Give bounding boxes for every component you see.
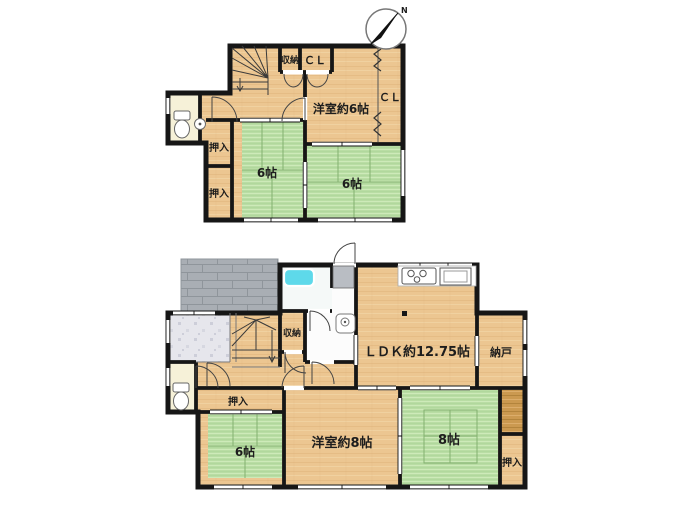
1f-toilet-fixture — [173, 383, 189, 410]
2f-closet-top-label: ＣＬ — [304, 54, 326, 67]
1f-ldk-label: ＬＤＫ約12.75帖 — [364, 344, 470, 360]
2f-closet-right-label: ＣＬ — [379, 91, 401, 104]
2f-tatami-right-label: 6帖 — [342, 176, 362, 191]
2f-western-room-label: 洋室約6帖 — [313, 101, 369, 116]
1f-nando-label: 納戸 — [490, 345, 512, 359]
1f-tatami8-label: 8帖 — [438, 432, 460, 448]
floor-1f: 収納 ＬＤＫ約12.75帖 納戸 押入 6帖 洋室約8帖 8帖 押入 — [166, 243, 528, 489]
2f-oshiire-lower-label: 押入 — [209, 187, 229, 200]
1f-oshiire-left-label: 押入 — [228, 395, 248, 408]
1f-board-closet — [500, 390, 523, 434]
1f-western-room-label: 洋室約8帖 — [311, 435, 372, 451]
floorplan-canvas: 収納 ＣＬ 洋室約6帖 ＣＬ 押入 押入 6帖 6帖 N — [0, 0, 674, 506]
1f-oshiire-right-label: 押入 — [502, 456, 522, 469]
1f-bathtub — [284, 269, 314, 286]
floor-2f: 収納 ＣＬ 洋室約6帖 ＣＬ 押入 押入 6帖 6帖 — [166, 46, 406, 222]
2f-tatami-left-label: 6帖 — [257, 165, 277, 180]
1f-washing-machine — [333, 266, 354, 288]
1f-vanity-sink — [336, 314, 355, 333]
1f-porch — [181, 259, 278, 311]
1f-pillar — [402, 311, 407, 316]
compass-north-label: N — [401, 6, 408, 15]
1f-tatami6-label: 6帖 — [235, 444, 255, 459]
1f-washroom-strip — [332, 288, 356, 312]
2f-oshiire-upper-label: 押入 — [209, 141, 229, 154]
floorplan-svg: 収納 ＣＬ 洋室約6帖 ＣＬ 押入 押入 6帖 6帖 N — [0, 0, 674, 506]
1f-genkan — [168, 313, 230, 362]
1f-storage-label: 収納 — [283, 327, 301, 339]
1f-kitchen-counter — [398, 266, 476, 286]
compass: N — [366, 6, 408, 49]
2f-storage-label: 収納 — [281, 54, 299, 66]
